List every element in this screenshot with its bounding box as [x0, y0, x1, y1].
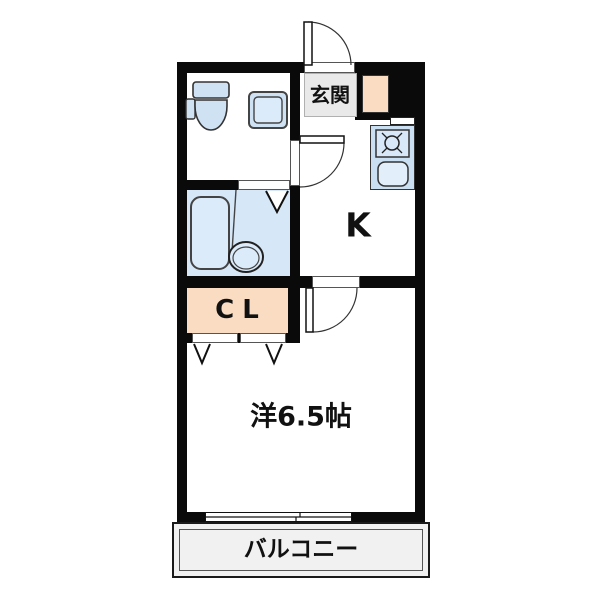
sliding-window: [205, 512, 352, 522]
toilet-room-door-opening: [290, 140, 300, 186]
toilet-room-swing-door-icon: [300, 136, 344, 187]
wall-closet-right: [288, 288, 300, 333]
entrance-swing-door-icon: [304, 22, 351, 65]
closet-door-opening-right: [240, 333, 286, 343]
closet-door-opening-left: [192, 333, 238, 343]
toilet-icon: [186, 82, 229, 130]
closet-folding-door-left-icon: [194, 344, 210, 363]
kitchen-counter: [370, 125, 415, 190]
bathroom-area: [187, 190, 290, 276]
kitchen-label: K: [345, 209, 371, 242]
main-room-label: 洋6.5帖: [250, 404, 352, 431]
closet-label: CL: [215, 297, 267, 323]
washing-machine-pan-icon: [249, 92, 287, 128]
entrance-door-opening: [304, 62, 355, 73]
floor-plan: 玄関 K CL 洋6.5帖 バルコニー: [0, 0, 600, 600]
wall-mid-horizontal: [177, 276, 425, 288]
shoe-cabinet: [362, 75, 389, 113]
entrance-label: 玄関: [310, 85, 350, 105]
fixtures-layer: [0, 0, 600, 600]
balcony-label: バルコニー: [244, 539, 359, 562]
closet-folding-door-right-icon: [266, 344, 282, 363]
wall-right: [415, 62, 425, 522]
wall-left: [177, 62, 187, 522]
bathroom-door-opening: [238, 180, 290, 190]
main-room-swing-door-icon: [306, 288, 357, 332]
main-room-door-opening: [312, 276, 360, 288]
kitchen-window: [390, 117, 415, 125]
